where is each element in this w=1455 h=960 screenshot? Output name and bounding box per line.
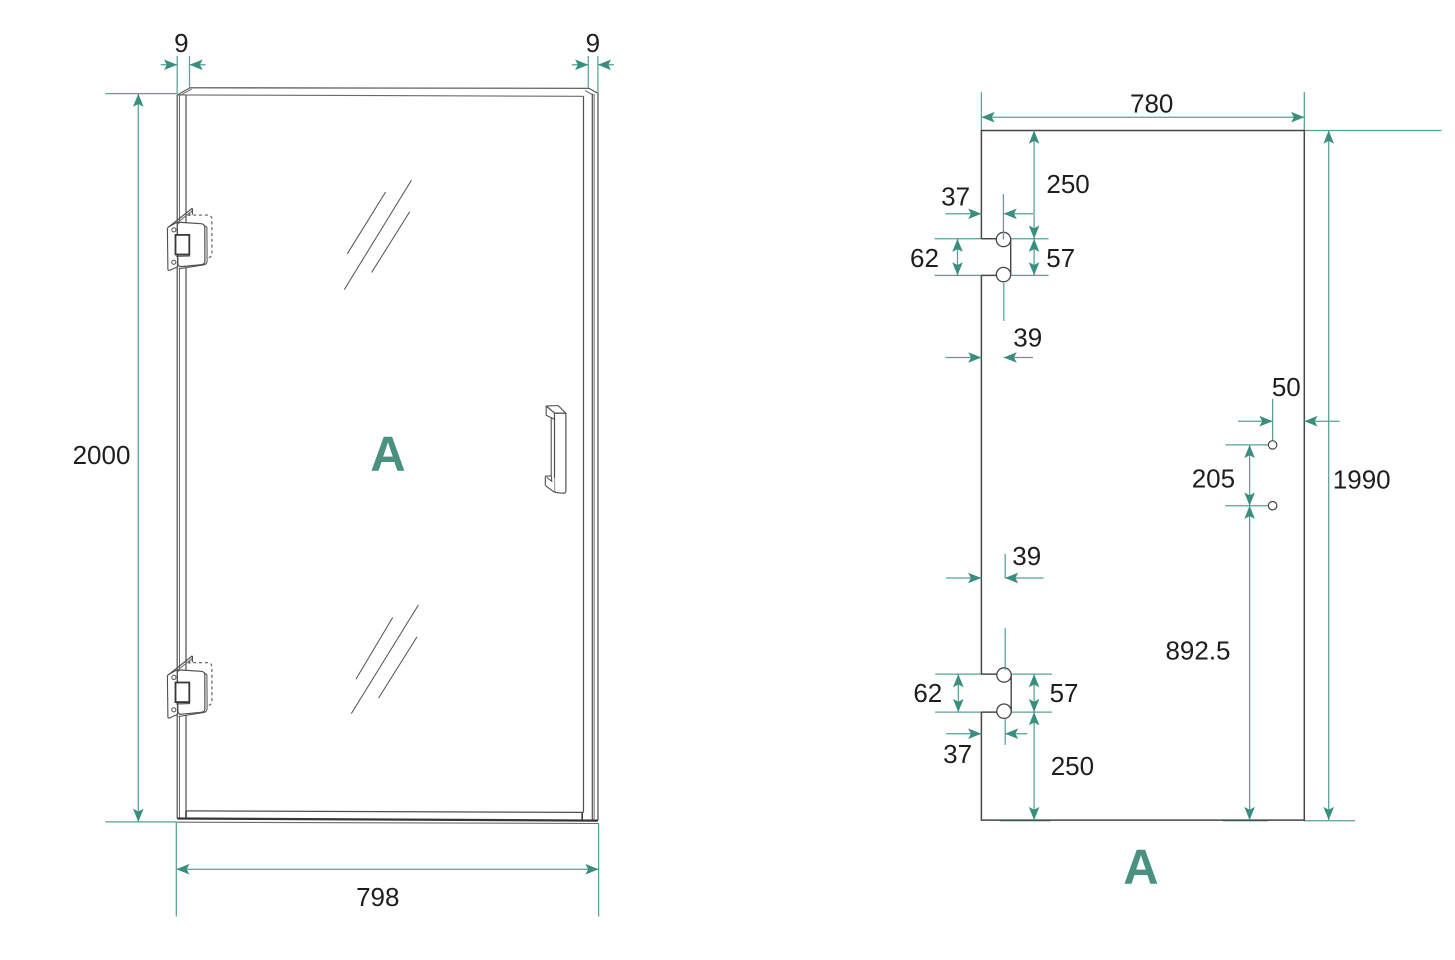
svg-text:798: 798: [356, 882, 399, 912]
svg-text:37: 37: [941, 181, 970, 211]
svg-text:A: A: [370, 427, 405, 481]
svg-text:9: 9: [174, 28, 188, 58]
svg-text:37: 37: [943, 739, 972, 769]
svg-text:780: 780: [1130, 88, 1173, 118]
svg-text:1990: 1990: [1333, 465, 1391, 495]
svg-text:39: 39: [1012, 541, 1041, 571]
svg-text:50: 50: [1272, 372, 1301, 402]
svg-text:9: 9: [586, 28, 600, 58]
svg-text:62: 62: [913, 678, 942, 708]
svg-text:205: 205: [1192, 463, 1235, 493]
svg-text:2000: 2000: [73, 440, 131, 470]
svg-text:250: 250: [1051, 751, 1094, 781]
svg-text:57: 57: [1050, 678, 1079, 708]
svg-text:892.5: 892.5: [1165, 635, 1230, 665]
svg-text:39: 39: [1013, 322, 1042, 352]
svg-text:A: A: [1123, 840, 1158, 894]
svg-text:62: 62: [910, 243, 939, 273]
svg-text:57: 57: [1046, 243, 1075, 273]
svg-text:250: 250: [1046, 169, 1089, 199]
